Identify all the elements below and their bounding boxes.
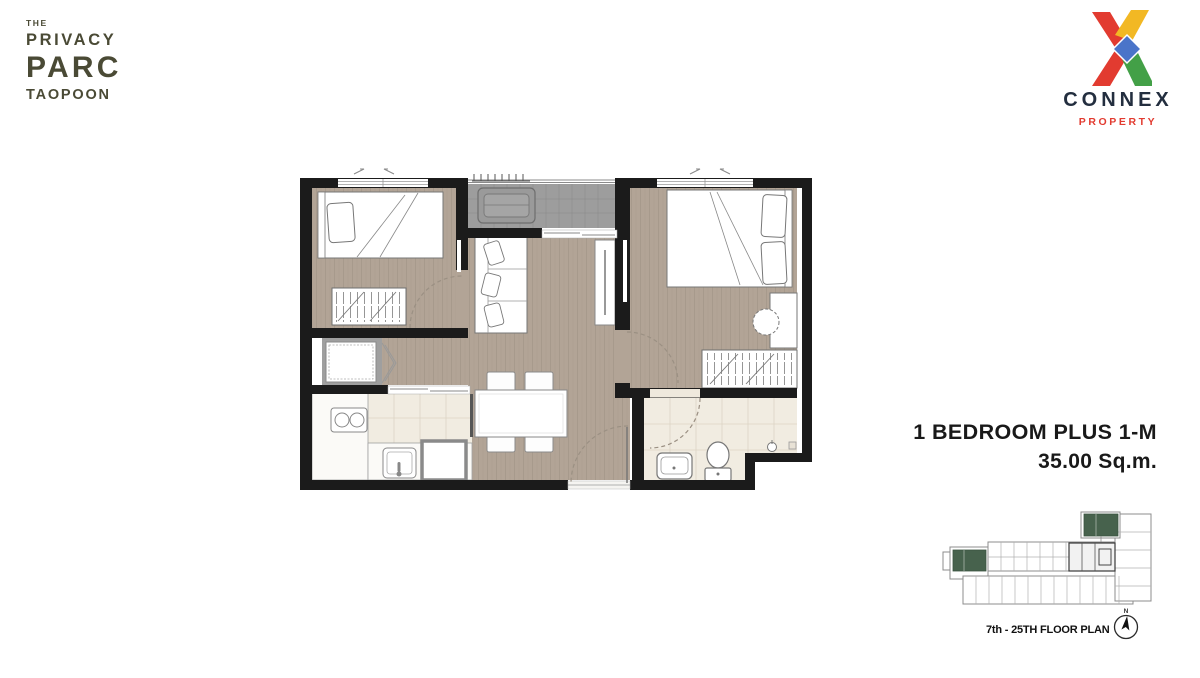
privacy-parc-logo: THE PRIVACY PARC TAOPOON xyxy=(26,18,122,103)
logo-line-taopoon: TAOPOON xyxy=(26,87,122,103)
counter-end-panel xyxy=(470,394,473,437)
pillow-icon xyxy=(761,194,787,237)
connex-division: PROPERTY xyxy=(1040,116,1196,128)
wardrobe1-icon xyxy=(332,288,406,325)
balcony xyxy=(468,184,615,228)
floor-drain-icon xyxy=(789,442,796,449)
dining-table-icon xyxy=(475,390,567,437)
bedroom2-door-opening xyxy=(615,330,630,383)
basin-icon xyxy=(657,453,692,479)
wall-niche xyxy=(457,240,461,272)
vent-marks xyxy=(354,169,730,174)
stove-icon xyxy=(331,408,367,432)
unit-floor-plan xyxy=(298,165,815,495)
balcony-railing xyxy=(468,174,615,184)
keyplan-core xyxy=(1069,543,1115,571)
unit-area: 35.00 Sq.m. xyxy=(913,450,1157,474)
keyplan-caption: 7th - 25TH FLOOR PLAN xyxy=(986,624,1110,636)
building-key-plan xyxy=(941,502,1163,617)
tv-console-icon xyxy=(595,240,615,325)
bedroom2-window xyxy=(657,179,753,187)
wardrobe2-icon xyxy=(702,350,797,388)
single-bed-icon xyxy=(318,192,443,258)
wall-niche xyxy=(623,240,627,302)
logo-line-the: THE xyxy=(26,18,122,28)
double-bed-icon xyxy=(667,190,792,287)
keyplan-lower-slab xyxy=(963,576,1133,604)
kitchen xyxy=(312,387,473,480)
pillow-icon xyxy=(761,241,787,284)
connex-name: CONNEX xyxy=(1040,89,1196,112)
bedroom1-window xyxy=(338,179,428,187)
kitchen-counter-left xyxy=(312,387,368,480)
compass-north-label: N xyxy=(1124,608,1129,615)
compass-icon: N xyxy=(1108,604,1144,644)
connex-x-icon xyxy=(1081,10,1155,88)
x-yellow-bar xyxy=(1115,10,1149,41)
keyplan-left-stub xyxy=(943,552,950,570)
logo-line-parc: PARC xyxy=(26,51,122,85)
toilet-icon xyxy=(705,442,731,481)
bathroom-door-opening xyxy=(650,389,700,398)
sofa-icon xyxy=(475,237,527,333)
highlighted-unit xyxy=(1084,514,1118,536)
highlighted-unit xyxy=(953,550,986,571)
unit-type-title: 1 BEDROOM PLUS 1-M xyxy=(913,420,1157,445)
bedroom1-door-opening xyxy=(456,270,468,328)
unit-caption: 1 BEDROOM PLUS 1-M 35.00 Sq.m. xyxy=(913,420,1157,474)
pillow-icon xyxy=(327,202,356,243)
washing-machine-icon xyxy=(326,342,376,382)
ac-condenser-icon xyxy=(478,188,535,223)
logo-line-privacy: PRIVACY xyxy=(26,31,122,50)
bathroom xyxy=(644,398,797,481)
stool-icon xyxy=(753,309,779,335)
kitchen-sink-icon xyxy=(383,448,416,478)
entrance-threshold xyxy=(568,481,630,489)
kitchen-sliding-door xyxy=(388,386,470,394)
connex-property-logo: CONNEX PROPERTY xyxy=(1040,10,1196,128)
balcony-sliding-door xyxy=(542,230,617,238)
refrigerator-icon xyxy=(422,441,466,480)
